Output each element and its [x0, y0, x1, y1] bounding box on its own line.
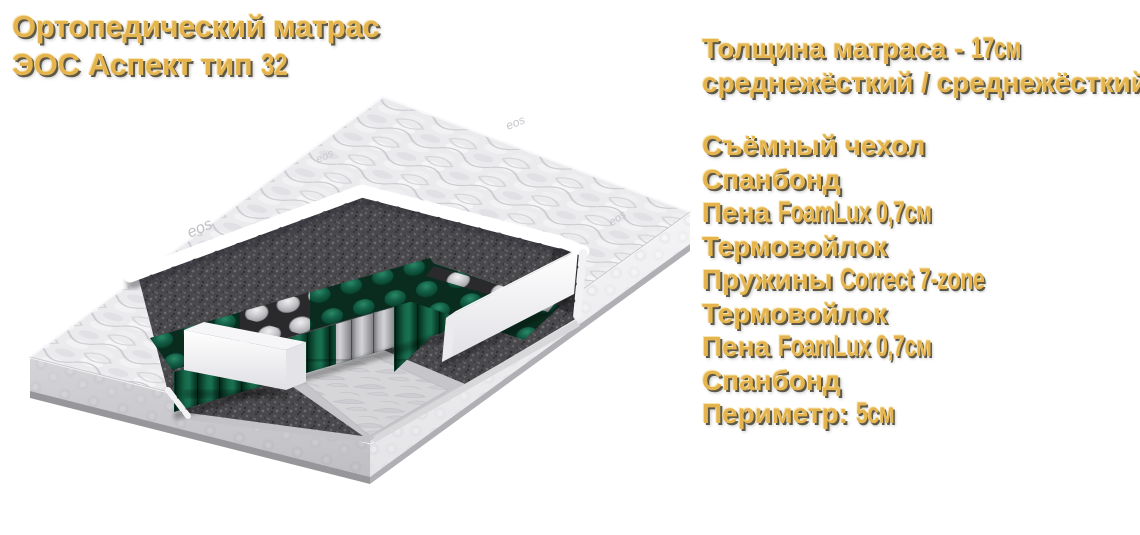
eos-logo-text: eos [504, 113, 527, 133]
layer-text: Съёмный чехол [702, 130, 925, 161]
layers-list: Съёмный чехол Спанбонд Пена FoamLux 0,7с… [702, 129, 1041, 431]
layer-item: Периметр: 5см [702, 397, 1041, 431]
layer-item: Пена FoamLux 0,7см [702, 330, 1041, 364]
spec-thickness-value: 17см [971, 32, 1021, 66]
spec-thickness: Толщина матраса - 17см [702, 32, 1140, 66]
specs-block: Толщина матраса - 17см среднежёсткий / с… [702, 32, 1140, 100]
layer-text: Пружины [702, 264, 840, 295]
title-line2: ЭОС Аспект тип 32 [12, 46, 379, 84]
foam-left-shadow [184, 390, 286, 398]
layer-value: Correct 7-zone [840, 263, 985, 297]
layer-item: Съёмный чехол [702, 129, 1041, 163]
layer-value: FoamLux 0,7см [778, 330, 932, 364]
title-line2-text: ЭОС Аспект тип [12, 47, 261, 82]
layer-item: Спанбонд [702, 163, 1041, 197]
layer-item: Спанбонд [702, 364, 1041, 398]
layer-item: Пружины Correct 7-zone [702, 263, 1041, 297]
layer-text: Пена [702, 197, 778, 228]
layer-text: Спанбонд [702, 365, 841, 396]
layer-text: Пена [702, 331, 778, 362]
foam-left-end [286, 342, 306, 390]
layer-text: Периметр: [702, 398, 856, 429]
layer-text: Термовойлок [702, 298, 887, 329]
spec-thickness-label: Толщина матраса - [702, 33, 971, 64]
layer-item: Термовойлок [702, 230, 1041, 264]
title-line1: Ортопедический матрас [12, 8, 379, 46]
layer-item: Пена FoamLux 0,7см [702, 196, 1041, 230]
layer-value: 5см [856, 397, 894, 431]
layer-text: Спанбонд [702, 164, 841, 195]
layer-value: FoamLux 0,7см [778, 196, 932, 230]
layer-item: Термовойлок [702, 297, 1041, 331]
spec-firmness: среднежёсткий / среднежёсткий [702, 66, 1140, 100]
product-title: Ортопедический матрас ЭОС Аспект тип 32 [12, 8, 379, 84]
layer-text: Термовойлок [702, 231, 887, 262]
title-line2-number: 32 [261, 46, 287, 84]
